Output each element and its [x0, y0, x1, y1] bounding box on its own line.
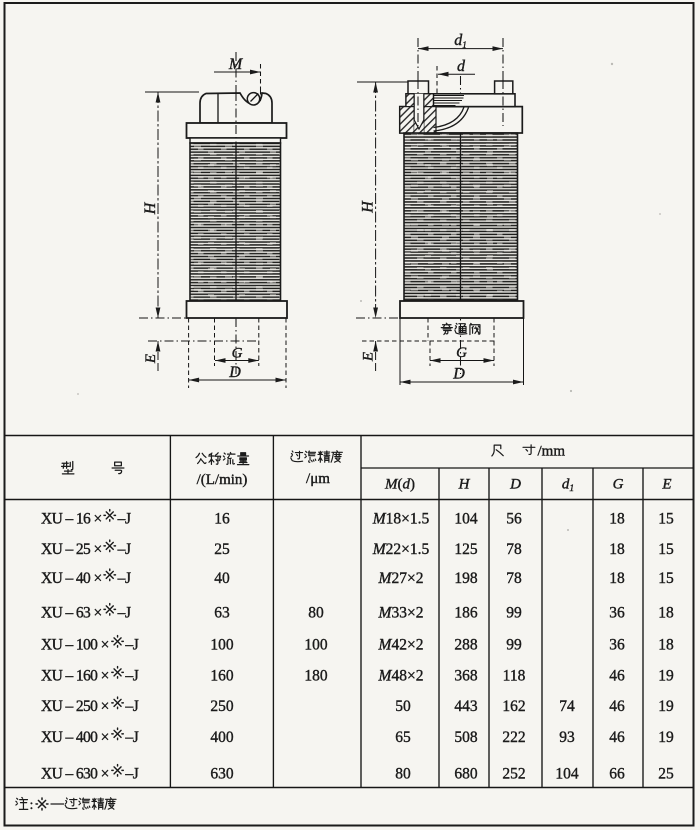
svg-text:180: 180: [304, 667, 328, 684]
svg-text:15: 15: [658, 570, 674, 587]
svg-text:–J: –J: [124, 729, 138, 746]
svg-text:H: H: [142, 201, 159, 215]
svg-text:186: 186: [454, 604, 478, 621]
svg-text:G: G: [613, 477, 624, 493]
svg-text:XU – 250 ×: XU – 250 ×: [41, 698, 109, 715]
svg-text:19: 19: [658, 698, 674, 715]
svg-text:D: D: [228, 364, 241, 381]
svg-text:M22×1.5: M22×1.5: [372, 541, 430, 558]
svg-text:100: 100: [210, 636, 234, 653]
svg-text:368: 368: [454, 667, 478, 684]
svg-text:–J: –J: [117, 604, 131, 621]
svg-text:–J: –J: [124, 667, 138, 684]
svg-text:D: D: [509, 477, 521, 493]
svg-text:25: 25: [658, 765, 674, 782]
svg-text:18: 18: [609, 570, 625, 587]
svg-text:46: 46: [609, 667, 625, 684]
svg-text:–J: –J: [117, 510, 131, 527]
svg-text:M18×1.5: M18×1.5: [372, 510, 430, 527]
svg-text:66: 66: [609, 765, 625, 782]
svg-text:XU – 25 ×: XU – 25 ×: [41, 541, 102, 558]
svg-text:443: 443: [454, 698, 478, 715]
svg-text:M(d): M(d): [384, 477, 415, 493]
svg-text:–J: –J: [117, 570, 131, 587]
svg-text:99: 99: [506, 636, 522, 653]
svg-text:40: 40: [214, 570, 230, 587]
svg-text:93: 93: [559, 729, 575, 746]
svg-text:XU – 16 ×: XU – 16 ×: [41, 510, 102, 527]
svg-text:M: M: [228, 56, 244, 73]
svg-text:16: 16: [214, 510, 230, 527]
svg-text:18: 18: [609, 541, 625, 558]
svg-text:104: 104: [454, 510, 478, 527]
svg-text:46: 46: [609, 729, 625, 746]
svg-text:288: 288: [454, 636, 478, 653]
svg-text:630: 630: [210, 765, 234, 782]
svg-text:74: 74: [559, 698, 575, 715]
svg-text:19: 19: [658, 667, 674, 684]
svg-text:125: 125: [454, 541, 478, 558]
svg-text:G: G: [456, 345, 467, 361]
svg-text:D: D: [452, 366, 465, 383]
svg-text::: :: [30, 798, 34, 813]
svg-text:78: 78: [506, 541, 522, 558]
svg-text:222: 222: [502, 729, 525, 746]
svg-text:E: E: [143, 354, 159, 364]
svg-text:18: 18: [658, 604, 674, 621]
svg-text:104: 104: [555, 765, 579, 782]
svg-text:252: 252: [502, 765, 525, 782]
svg-text:46: 46: [609, 698, 625, 715]
svg-text:15: 15: [658, 510, 674, 527]
svg-text:E: E: [361, 352, 377, 362]
svg-text:508: 508: [454, 729, 478, 746]
svg-text:160: 160: [210, 667, 234, 684]
svg-text:80: 80: [395, 765, 411, 782]
svg-text:100: 100: [304, 636, 328, 653]
svg-text:d: d: [457, 58, 466, 75]
svg-text:G: G: [232, 346, 243, 362]
svg-text:400: 400: [210, 729, 234, 746]
svg-text:XU – 160 ×: XU – 160 ×: [41, 667, 109, 684]
svg-text:25: 25: [214, 541, 230, 558]
svg-text:/μm: /μm: [306, 471, 330, 487]
svg-text:36: 36: [609, 636, 625, 653]
svg-text:63: 63: [214, 604, 230, 621]
svg-text:680: 680: [454, 765, 478, 782]
svg-text:XU – 400 ×: XU – 400 ×: [41, 729, 109, 746]
svg-text:15: 15: [658, 541, 674, 558]
svg-text:19: 19: [658, 729, 674, 746]
svg-text:50: 50: [395, 698, 411, 715]
svg-text:XU – 63 ×: XU – 63 ×: [41, 604, 102, 621]
svg-text:H: H: [458, 477, 471, 493]
svg-text:80: 80: [308, 604, 324, 621]
svg-text:198: 198: [454, 570, 478, 587]
svg-text:162: 162: [502, 698, 525, 715]
svg-text:XU – 40 ×: XU – 40 ×: [41, 570, 102, 587]
svg-text:M27×2: M27×2: [378, 570, 424, 587]
svg-text:56: 56: [506, 510, 522, 527]
svg-text:250: 250: [210, 698, 234, 715]
svg-text:/mm: /mm: [538, 444, 566, 460]
svg-text:–J: –J: [124, 636, 138, 653]
svg-text:–J: –J: [124, 698, 138, 715]
svg-text:–J: –J: [124, 765, 138, 782]
svg-text:M33×2: M33×2: [378, 604, 424, 621]
svg-text:M48×2: M48×2: [378, 667, 424, 684]
svg-text:18: 18: [609, 510, 625, 527]
svg-text:E: E: [661, 477, 671, 493]
svg-text:36: 36: [609, 604, 625, 621]
svg-text:18: 18: [658, 636, 674, 653]
svg-text:118: 118: [503, 667, 526, 684]
svg-text:–J: –J: [117, 541, 131, 558]
svg-text:M42×2: M42×2: [378, 636, 424, 653]
svg-text:XU – 100 ×: XU – 100 ×: [41, 636, 109, 653]
svg-text:XU – 630 ×: XU – 630 ×: [41, 765, 109, 782]
svg-text:65: 65: [395, 729, 411, 746]
svg-text:/(L/min): /(L/min): [197, 472, 248, 488]
svg-text:99: 99: [506, 604, 522, 621]
svg-text:H: H: [360, 200, 377, 214]
svg-text:78: 78: [506, 570, 522, 587]
